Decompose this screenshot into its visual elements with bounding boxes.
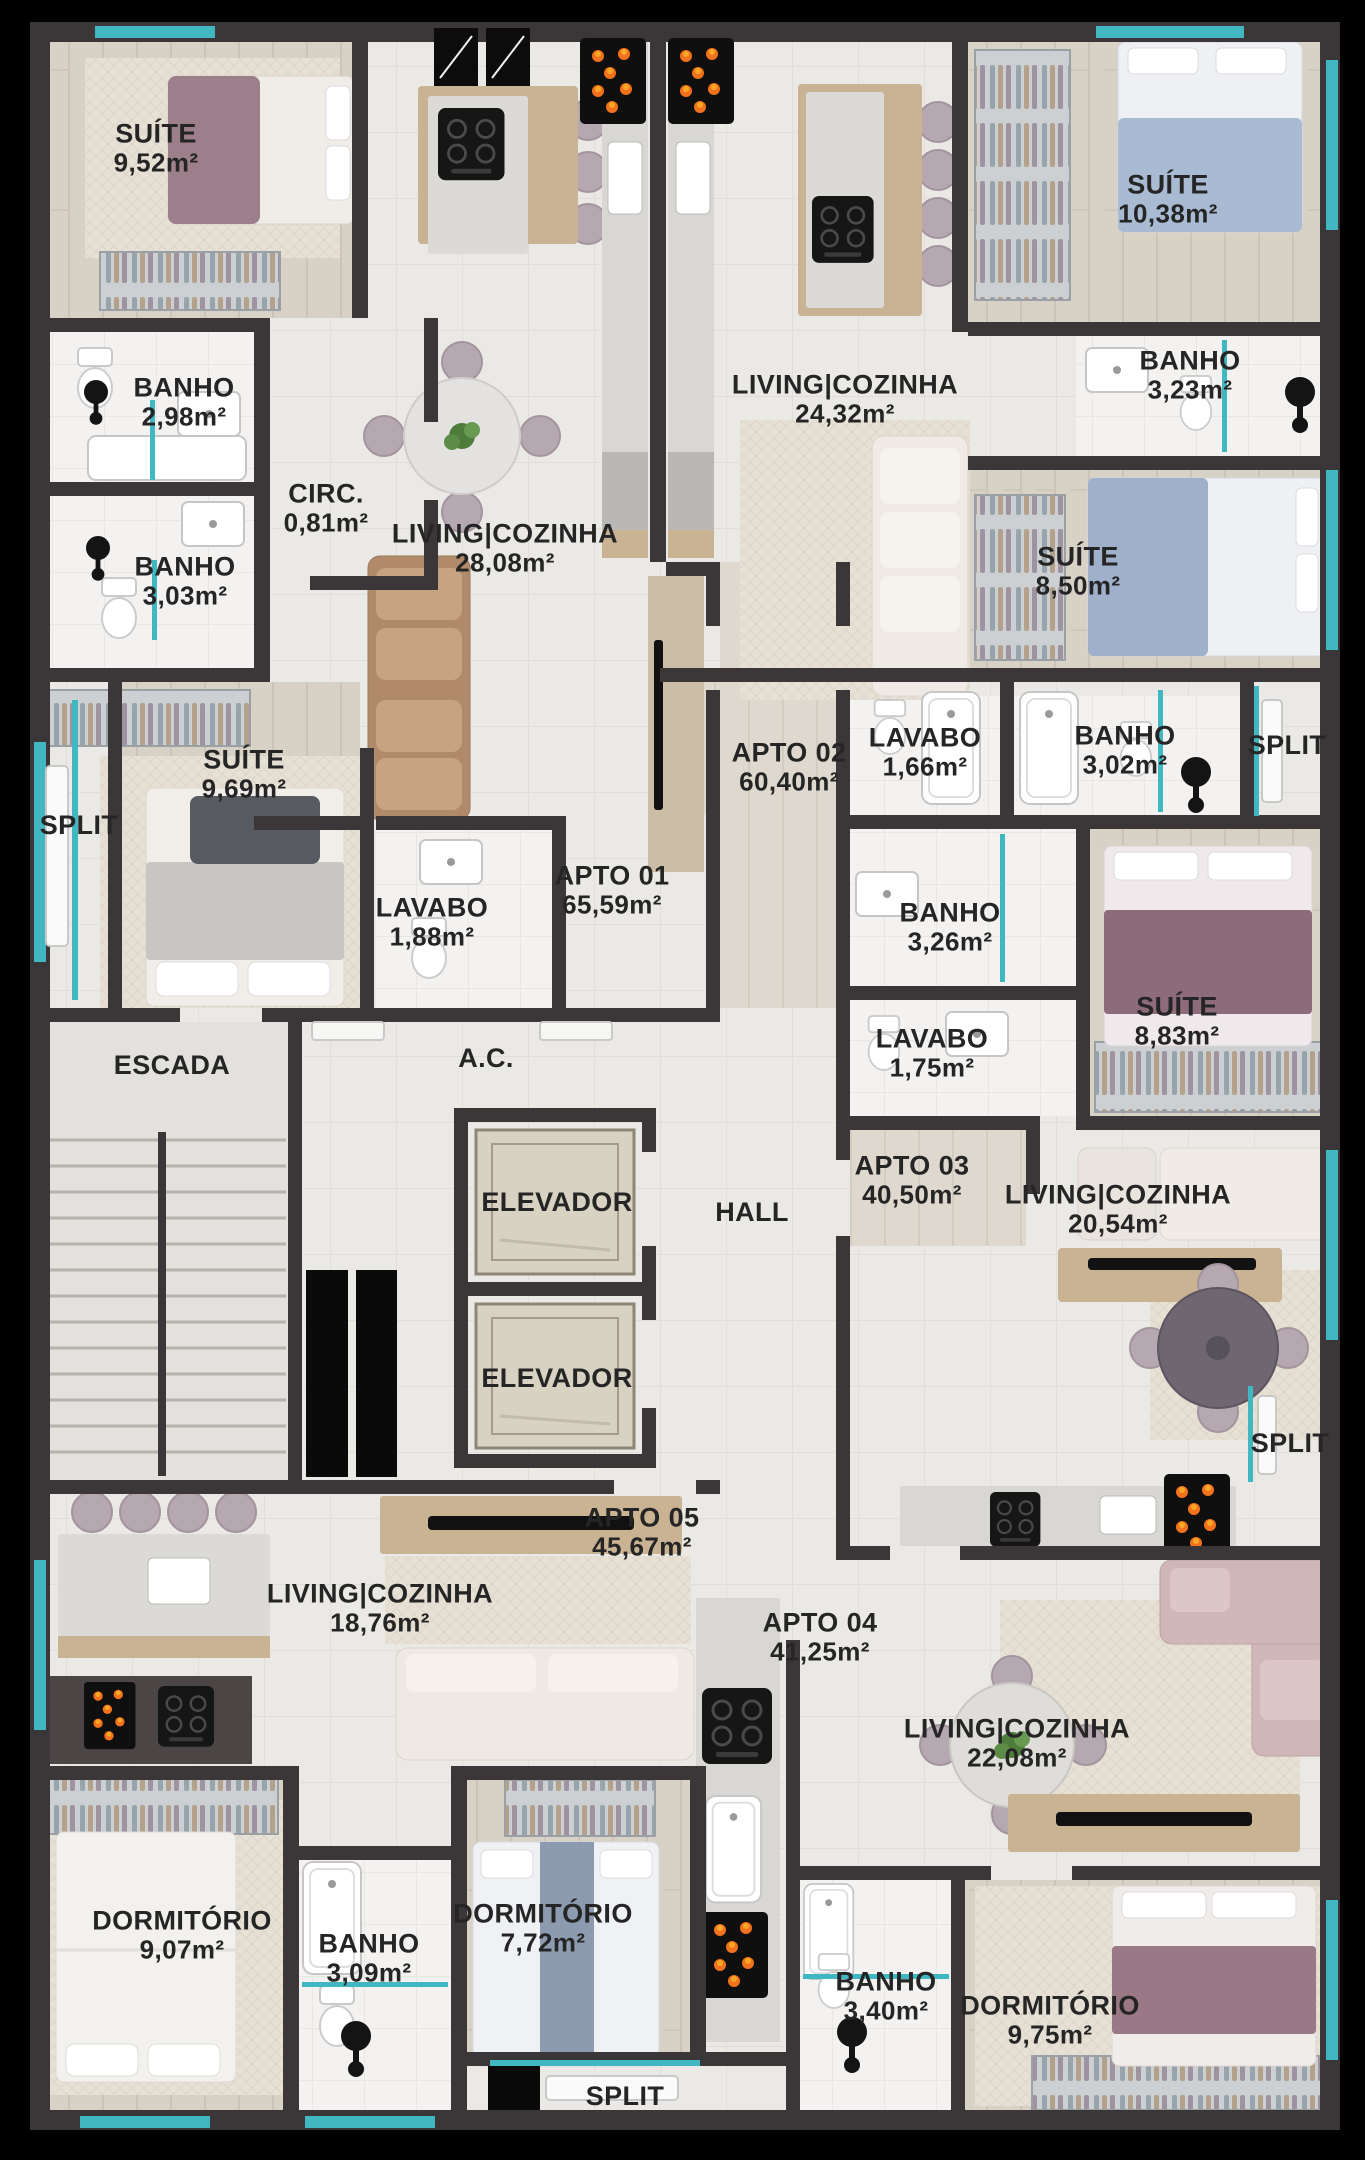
label-suite-1038: SUÍTE10,38m² [1118,169,1218,228]
room-area: 18,76m² [267,1609,493,1638]
label-lavabo-175: LAVABO1,75m² [876,1023,988,1082]
label-split-e: SPLIT [1251,1428,1330,1458]
room-area: 45,67m² [585,1533,700,1562]
room-area: 9,75m² [960,2021,1140,2050]
room-name: LAVABO [876,1023,988,1053]
label-suite-850: SUÍTE8,50m² [1036,541,1121,600]
room-area: 22,08m² [904,1744,1130,1773]
room-name: APTO 01 [555,860,670,890]
label-living-2432: LIVING|COZINHA24,32m² [732,369,958,428]
label-circ-081: CIRC.0,81m² [284,478,369,537]
room-name: LIVING|COZINHA [732,369,958,399]
room-name: LAVABO [376,892,488,922]
room-area: 3,40m² [836,1997,937,2026]
room-area: 41,25m² [763,1638,878,1667]
room-name: SPLIT [1251,1428,1330,1458]
label-apto-03: APTO 0340,50m² [855,1150,970,1209]
label-split-w: SPLIT [40,810,119,840]
label-dormitorio-772: DORMITÓRIO7,72m² [453,1898,633,1957]
room-area: 8,50m² [1036,572,1121,601]
label-suite-883: SUÍTE8,83m² [1135,991,1220,1050]
room-name: LAVABO [869,722,981,752]
label-living-1876: LIVING|COZINHA18,76m² [267,1578,493,1637]
room-name: DORMITÓRIO [453,1898,633,1928]
room-name: LIVING|COZINHA [267,1578,493,1608]
label-ac: A.C. [458,1043,514,1073]
room-name: LIVING|COZINHA [904,1713,1130,1743]
room-name: DORMITÓRIO [960,1990,1140,2020]
label-banho-303: BANHO3,03m² [135,551,236,610]
room-area: 1,88m² [376,923,488,952]
label-banho-340: BANHO3,40m² [836,1966,937,2025]
room-area: 3,02m² [1075,751,1176,780]
label-living-2208: LIVING|COZINHA22,08m² [904,1713,1130,1772]
room-name: SUÍTE [1136,991,1218,1021]
label-banho-323: BANHO3,23m² [1140,345,1241,404]
labels-layer: SUÍTE9,52m²BANHO2,98m²CIRC.0,81m²BANHO3,… [0,0,1365,2160]
room-name: BANHO [135,551,236,581]
room-area: 9,07m² [92,1936,272,1965]
room-area: 24,32m² [732,400,958,429]
label-dormitorio-907: DORMITÓRIO9,07m² [92,1905,272,1964]
label-elevador-1: ELEVADOR [481,1187,632,1217]
label-apto-05: APTO 0545,67m² [585,1502,700,1561]
label-hall: HALL [715,1197,789,1227]
room-name: BANHO [1075,720,1176,750]
label-suite-952: SUÍTE9,52m² [114,118,199,177]
room-area: 3,26m² [900,928,1001,957]
label-banho-326: BANHO3,26m² [900,897,1001,956]
label-split-s: SPLIT [586,2081,665,2111]
room-name: BANHO [836,1966,937,1996]
room-area: 9,69m² [202,775,287,804]
room-area: 7,72m² [453,1929,633,1958]
room-name: SUÍTE [1037,541,1119,571]
label-dormitorio-975: DORMITÓRIO9,75m² [960,1990,1140,2049]
floor-plan-image: SUÍTE9,52m²BANHO2,98m²CIRC.0,81m²BANHO3,… [0,0,1365,2160]
label-suite-969: SUÍTE9,69m² [202,744,287,803]
room-name: APTO 03 [855,1150,970,1180]
room-name: SPLIT [1248,730,1327,760]
room-name: SPLIT [586,2081,665,2111]
room-area: 60,40m² [732,768,847,797]
label-escada: ESCADA [114,1050,230,1080]
room-area: 3,23m² [1140,376,1241,405]
room-name: APTO 02 [732,737,847,767]
room-name: CIRC. [288,478,364,508]
room-area: 20,54m² [1005,1210,1231,1239]
room-name: APTO 04 [763,1607,878,1637]
room-name: SUÍTE [203,744,285,774]
room-name: SUÍTE [115,118,197,148]
room-name: A.C. [458,1043,514,1073]
room-area: 0,81m² [284,509,369,538]
room-name: DORMITÓRIO [92,1905,272,1935]
room-name: SUÍTE [1127,169,1209,199]
room-area: 10,38m² [1118,200,1218,229]
room-name: HALL [715,1197,789,1227]
room-name: ELEVADOR [481,1187,632,1217]
label-living-2054: LIVING|COZINHA20,54m² [1005,1179,1231,1238]
label-living-2808: LIVING|COZINHA28,08m² [392,518,618,577]
label-elevador-2: ELEVADOR [481,1363,632,1393]
label-split-ne: SPLIT [1248,730,1327,760]
room-area: 3,03m² [135,582,236,611]
room-name: ELEVADOR [481,1363,632,1393]
label-apto-02: APTO 0260,40m² [732,737,847,796]
label-banho-309: BANHO3,09m² [319,1928,420,1987]
label-lavabo-188: LAVABO1,88m² [376,892,488,951]
label-apto-01: APTO 0165,59m² [555,860,670,919]
room-area: 65,59m² [555,891,670,920]
room-name: ESCADA [114,1050,230,1080]
room-name: LIVING|COZINHA [392,518,618,548]
label-banho-298: BANHO2,98m² [134,372,235,431]
room-area: 9,52m² [114,149,199,178]
room-name: SPLIT [40,810,119,840]
room-area: 8,83m² [1135,1022,1220,1051]
room-name: APTO 05 [585,1502,700,1532]
label-apto-04: APTO 0441,25m² [763,1607,878,1666]
room-area: 1,66m² [869,753,981,782]
label-banho-302: BANHO3,02m² [1075,720,1176,779]
room-area: 2,98m² [134,403,235,432]
room-name: BANHO [134,372,235,402]
room-name: BANHO [1140,345,1241,375]
room-name: BANHO [319,1928,420,1958]
label-lavabo-166: LAVABO1,66m² [869,722,981,781]
room-area: 28,08m² [392,549,618,578]
room-area: 1,75m² [876,1054,988,1083]
room-name: LIVING|COZINHA [1005,1179,1231,1209]
room-area: 40,50m² [855,1181,970,1210]
room-name: BANHO [900,897,1001,927]
room-area: 3,09m² [319,1959,420,1988]
